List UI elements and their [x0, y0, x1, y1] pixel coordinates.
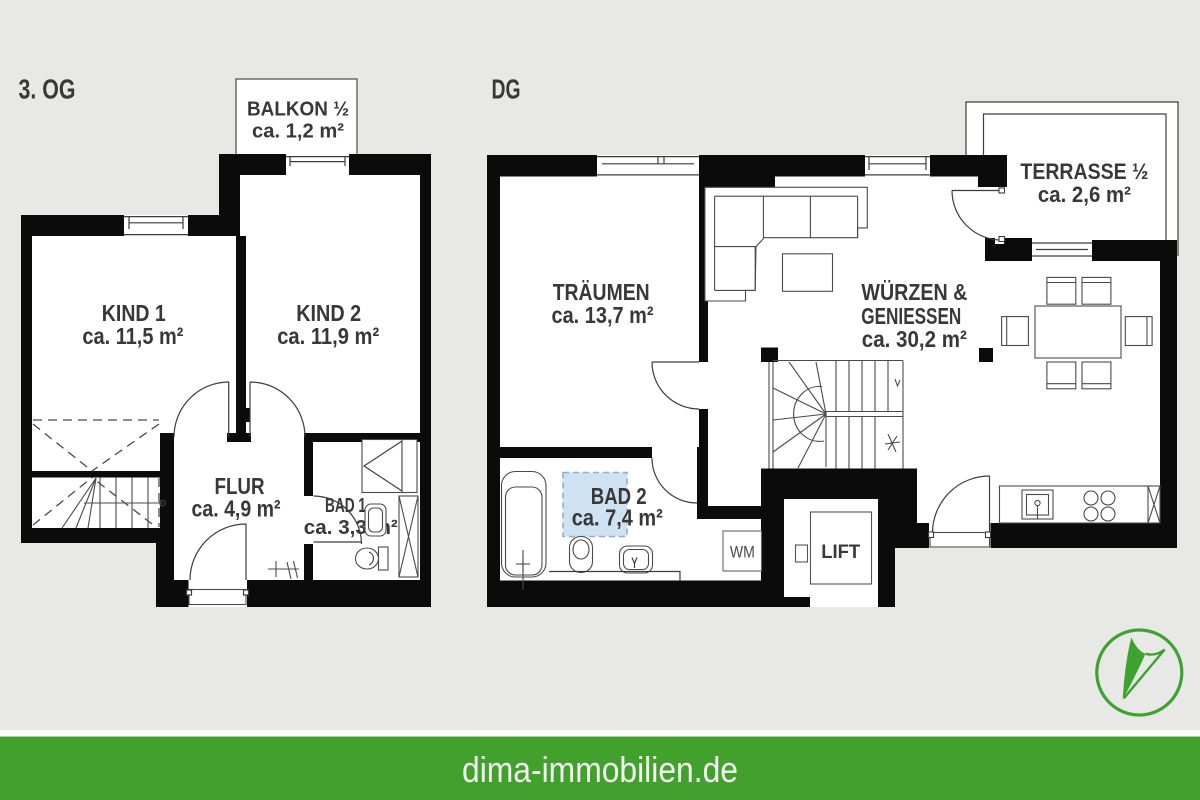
svg-text:ca. 13,7 m²: ca. 13,7 m²	[552, 302, 654, 328]
svg-text:3. OG: 3. OG	[19, 74, 76, 105]
svg-text:ca. 1,2 m²: ca. 1,2 m²	[252, 121, 344, 143]
svg-text:DG: DG	[492, 74, 521, 105]
svg-text:dima-immobilien.de: dima-immobilien.de	[462, 749, 738, 790]
svg-text:ca. 7,4 m²: ca. 7,4 m²	[572, 505, 663, 531]
svg-text:WÜRZEN &: WÜRZEN &	[861, 279, 967, 305]
svg-text:BALKON ½: BALKON ½	[247, 99, 349, 121]
svg-text:LIFT: LIFT	[821, 542, 860, 563]
svg-text:ca. 11,5 m²: ca. 11,5 m²	[82, 323, 183, 349]
svg-text:ca. 4,9 m²: ca. 4,9 m²	[192, 496, 281, 522]
svg-text:ca. 11,9 m²: ca. 11,9 m²	[277, 323, 379, 349]
svg-text:WM: WM	[730, 543, 755, 562]
svg-text:TERRASSE ½: TERRASSE ½	[1020, 159, 1148, 184]
svg-text:BAD 1: BAD 1	[325, 495, 366, 517]
svg-text:ca. 2,6 m²: ca. 2,6 m²	[1038, 182, 1131, 207]
svg-text:ca. 30,2 m²: ca. 30,2 m²	[862, 326, 967, 352]
